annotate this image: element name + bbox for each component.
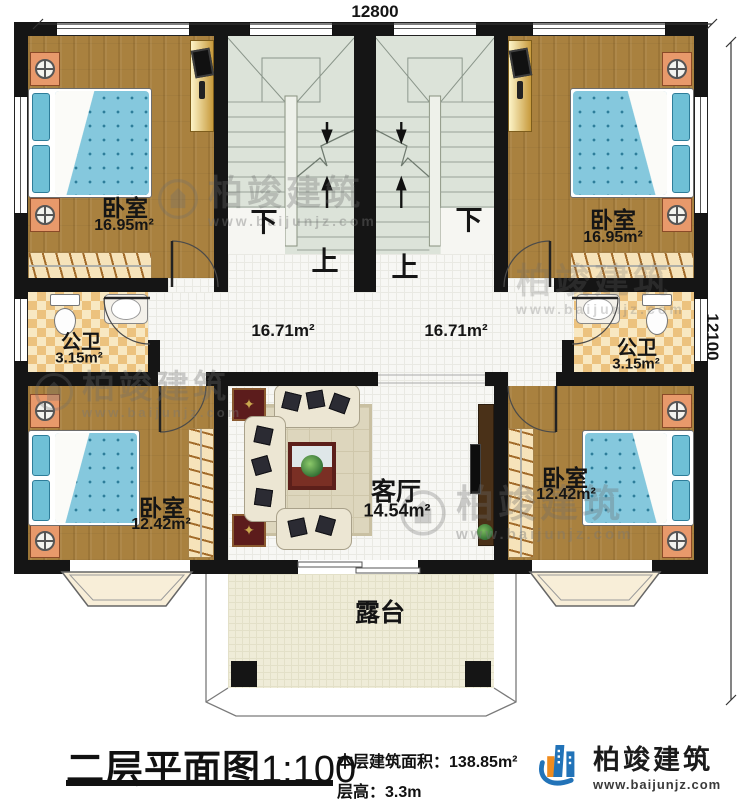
nightstand	[662, 394, 692, 428]
floor-area-label: 本层建筑面积：	[337, 754, 449, 771]
mattress	[585, 433, 667, 523]
bay-window-left	[62, 572, 192, 606]
pillows	[669, 89, 693, 197]
stair-label-up-left: 上	[312, 240, 339, 279]
wardrobe	[188, 428, 214, 558]
wardrobe	[570, 252, 694, 280]
terrace-post	[465, 661, 491, 687]
lamp-icon	[35, 205, 55, 225]
pillows	[29, 89, 53, 197]
dimension-top: 12800	[351, 2, 398, 22]
floor-area-line: 本层建筑面积：138.85m²	[337, 748, 518, 772]
staircase-left	[228, 36, 354, 254]
window	[694, 96, 708, 214]
floor-height-label: 层高：	[337, 784, 385, 801]
pillows	[669, 431, 693, 525]
hall-area-left: 16.71m²	[251, 321, 314, 341]
wall-interior	[28, 278, 168, 292]
coffee-table	[288, 442, 336, 490]
nightstand	[662, 52, 692, 86]
toilet	[642, 294, 672, 334]
pillows	[29, 431, 53, 525]
wall-bottom	[418, 560, 532, 574]
wardrobe	[28, 252, 152, 280]
room-area-bath-right: 3.15m²	[612, 356, 660, 373]
wall-bottom	[190, 560, 298, 574]
sliding-door	[298, 562, 420, 573]
dimension-right: 12100	[702, 313, 722, 360]
tv-icon	[508, 48, 532, 79]
wall-interior	[216, 278, 228, 292]
tv-icon	[470, 444, 481, 494]
room-label-terrace: 露台	[355, 593, 405, 629]
window	[14, 298, 28, 362]
room-area-bedroom-tl: 16.95m²	[94, 217, 154, 235]
wall-bottom	[14, 560, 70, 574]
lamp-icon	[667, 59, 687, 79]
nightstand	[30, 198, 60, 232]
sofa-left	[244, 416, 286, 522]
speaker-icon	[517, 81, 523, 99]
mattress	[55, 91, 149, 195]
wall-interior	[206, 372, 378, 386]
company-logo: 柏竣建筑 www.baijunjz.com	[536, 738, 721, 792]
window	[249, 22, 333, 36]
sofa-top	[274, 384, 360, 428]
stair-label-down-left: 下	[251, 201, 278, 240]
wall-stair-right	[494, 22, 508, 292]
tv-icon	[190, 48, 214, 79]
wall-stair-left	[214, 22, 228, 292]
title-underline	[66, 780, 333, 786]
wall-living-left	[214, 372, 228, 574]
terrace-post	[231, 661, 257, 687]
room-terrace-floor	[228, 574, 494, 688]
speaker-icon	[199, 81, 205, 99]
floor-area-value: 138.85m²	[449, 754, 518, 771]
wall-bath-right	[562, 340, 574, 372]
company-logo-icon	[536, 738, 584, 792]
company-url: www.baijunjz.com	[593, 777, 721, 792]
wall-interior	[556, 372, 708, 386]
mattress	[55, 433, 137, 523]
double-bed	[570, 88, 694, 198]
wall-interior	[554, 278, 694, 292]
room-area-living: 14.54m²	[363, 501, 430, 522]
wall-stair-center	[354, 22, 376, 292]
double-bed	[28, 430, 140, 526]
door-threshold	[168, 278, 216, 292]
sink	[576, 294, 620, 324]
floor-height-line: 层高：3.3m	[337, 778, 421, 802]
wall-living-right	[494, 372, 508, 574]
wall-interior	[494, 278, 506, 292]
wall-bath-left	[148, 340, 160, 372]
window	[14, 96, 28, 214]
lamp-icon	[667, 401, 687, 421]
lamp-icon	[35, 59, 55, 79]
window	[393, 22, 477, 36]
double-bed	[582, 430, 694, 526]
nightstand	[30, 394, 60, 428]
stair-label-down-right: 下	[456, 199, 483, 238]
window	[532, 22, 666, 36]
door-threshold	[506, 278, 554, 292]
sink	[104, 294, 148, 324]
nightstand	[30, 524, 60, 558]
window	[56, 22, 190, 36]
lamp-icon	[35, 531, 55, 551]
wardrobe	[508, 428, 534, 558]
wall-interior	[14, 372, 158, 386]
lamp-icon	[667, 205, 687, 225]
nightstand	[662, 198, 692, 232]
room-area-bath-left: 3.15m²	[55, 350, 103, 367]
nightstand	[662, 524, 692, 558]
stair-label-up-right: 上	[392, 246, 419, 285]
company-name: 柏竣建筑	[593, 738, 721, 777]
nightstand	[30, 52, 60, 86]
lamp-icon	[667, 531, 687, 551]
room-area-bedroom-bl: 12.42m²	[131, 516, 191, 534]
sofa-bottom	[276, 508, 352, 550]
tv-desk	[190, 40, 214, 132]
bay-window-right	[530, 572, 660, 606]
double-bed	[28, 88, 152, 198]
tv-desk	[508, 40, 532, 132]
wall-bottom	[652, 560, 708, 574]
plant-icon	[301, 455, 323, 477]
floor-height-value: 3.3m	[385, 784, 421, 801]
lamp-icon	[35, 401, 55, 421]
room-area-bedroom-br: 12.42m²	[536, 486, 596, 504]
floor-plan-page: ✦ ✦	[0, 0, 750, 806]
room-area-bedroom-tr: 16.95m²	[583, 229, 643, 247]
hall-area-right: 16.71m²	[424, 321, 487, 341]
mattress	[573, 91, 667, 195]
plant-icon	[477, 524, 493, 540]
